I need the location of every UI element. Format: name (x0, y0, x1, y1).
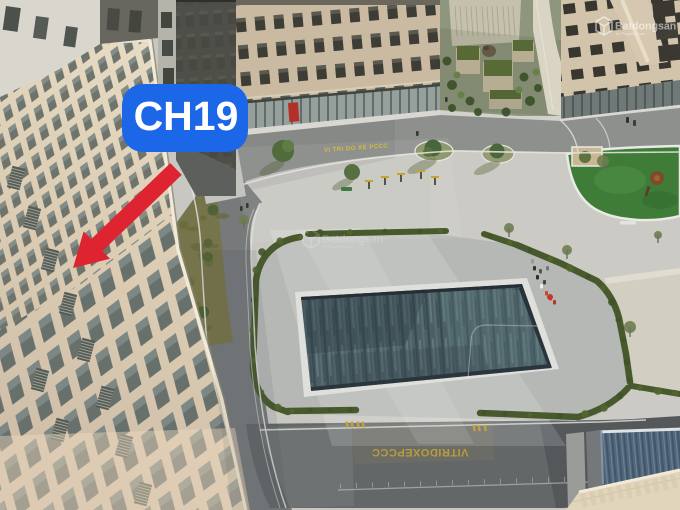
svg-text:CH19: CH19 (134, 93, 239, 139)
svg-text:by PropertyGuru: by PropertyGuru (616, 31, 645, 36)
svg-text:by PropertyGuru: by PropertyGuru (323, 244, 352, 249)
svg-text:VITRIDOXEPCCC: VITRIDOXEPCCC (372, 446, 469, 458)
